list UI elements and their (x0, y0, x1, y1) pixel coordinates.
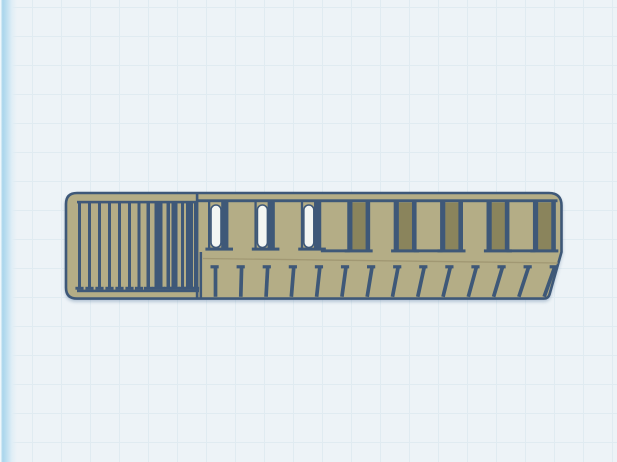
slot-through-hole (211, 205, 221, 248)
model-3d-object[interactable] (0, 0, 617, 462)
slot-left-post (208, 202, 210, 249)
grille-stripe-foot (105, 287, 113, 290)
grille-stripe (147, 203, 151, 289)
slot-right-post (366, 202, 371, 251)
grille-bottom-rail (77, 290, 199, 293)
grille-stripe (186, 203, 193, 289)
grille-stripe-foot (191, 287, 199, 290)
grille-stripe-foot (144, 287, 153, 290)
slot-blind-hole (538, 203, 552, 251)
slot-right-post (412, 202, 417, 251)
grille-stripe (181, 203, 184, 289)
tooth (266, 267, 268, 297)
grille-stripe-foot (75, 287, 83, 290)
grille-stripe (138, 203, 141, 289)
slot-top-rail (197, 199, 558, 202)
slot-right-post (221, 202, 228, 250)
slot-foot (530, 249, 558, 252)
slot-left-post (487, 202, 492, 251)
grille-stripe-foot (95, 287, 103, 290)
slot-right-post (314, 202, 321, 250)
grille-top-rail (77, 201, 196, 204)
grille-stripe-foot (152, 287, 165, 290)
slot-blind-hole (492, 203, 506, 251)
slot-blind-hole (352, 203, 366, 251)
grille-stripe (155, 203, 163, 289)
grille-stripe (194, 203, 197, 289)
workplane-canvas[interactable] (0, 0, 617, 462)
slot-right-post (505, 202, 510, 251)
slot-left-post (440, 202, 445, 251)
grille-stripe (172, 203, 178, 289)
slot-left-post (347, 202, 352, 251)
slot-left-post (394, 202, 399, 251)
grille-stripe (78, 203, 81, 289)
grille-stripe (167, 203, 171, 289)
slot-left-post (254, 202, 256, 249)
slot-foot (205, 248, 233, 251)
slot-foot (252, 248, 280, 251)
slot-through-hole (257, 205, 267, 248)
tooth (241, 267, 242, 297)
slot-left-post (301, 202, 303, 249)
slot-blind-hole (445, 203, 459, 251)
grille-stripe (88, 203, 91, 289)
slot-right-post (268, 202, 275, 250)
grille-stripe-foot (135, 287, 143, 290)
grille-stripe (98, 203, 101, 289)
grille-stripe-foot (115, 287, 123, 290)
slot-left-post (533, 202, 538, 251)
slot-right-post (551, 202, 556, 251)
step-edge (200, 252, 203, 298)
slot-foot (438, 249, 466, 252)
grille-stripe (118, 203, 121, 289)
slot-blind-hole (399, 203, 413, 251)
slot-foot (345, 249, 373, 252)
slot-right-post (458, 202, 463, 251)
grille-stripe-foot (125, 287, 133, 290)
slot-through-hole (304, 205, 314, 248)
model-group[interactable] (66, 193, 562, 299)
grille-stripe-foot (85, 287, 93, 290)
grille-stripe (108, 203, 111, 289)
tooth (291, 267, 293, 297)
grille-stripe (128, 203, 131, 289)
